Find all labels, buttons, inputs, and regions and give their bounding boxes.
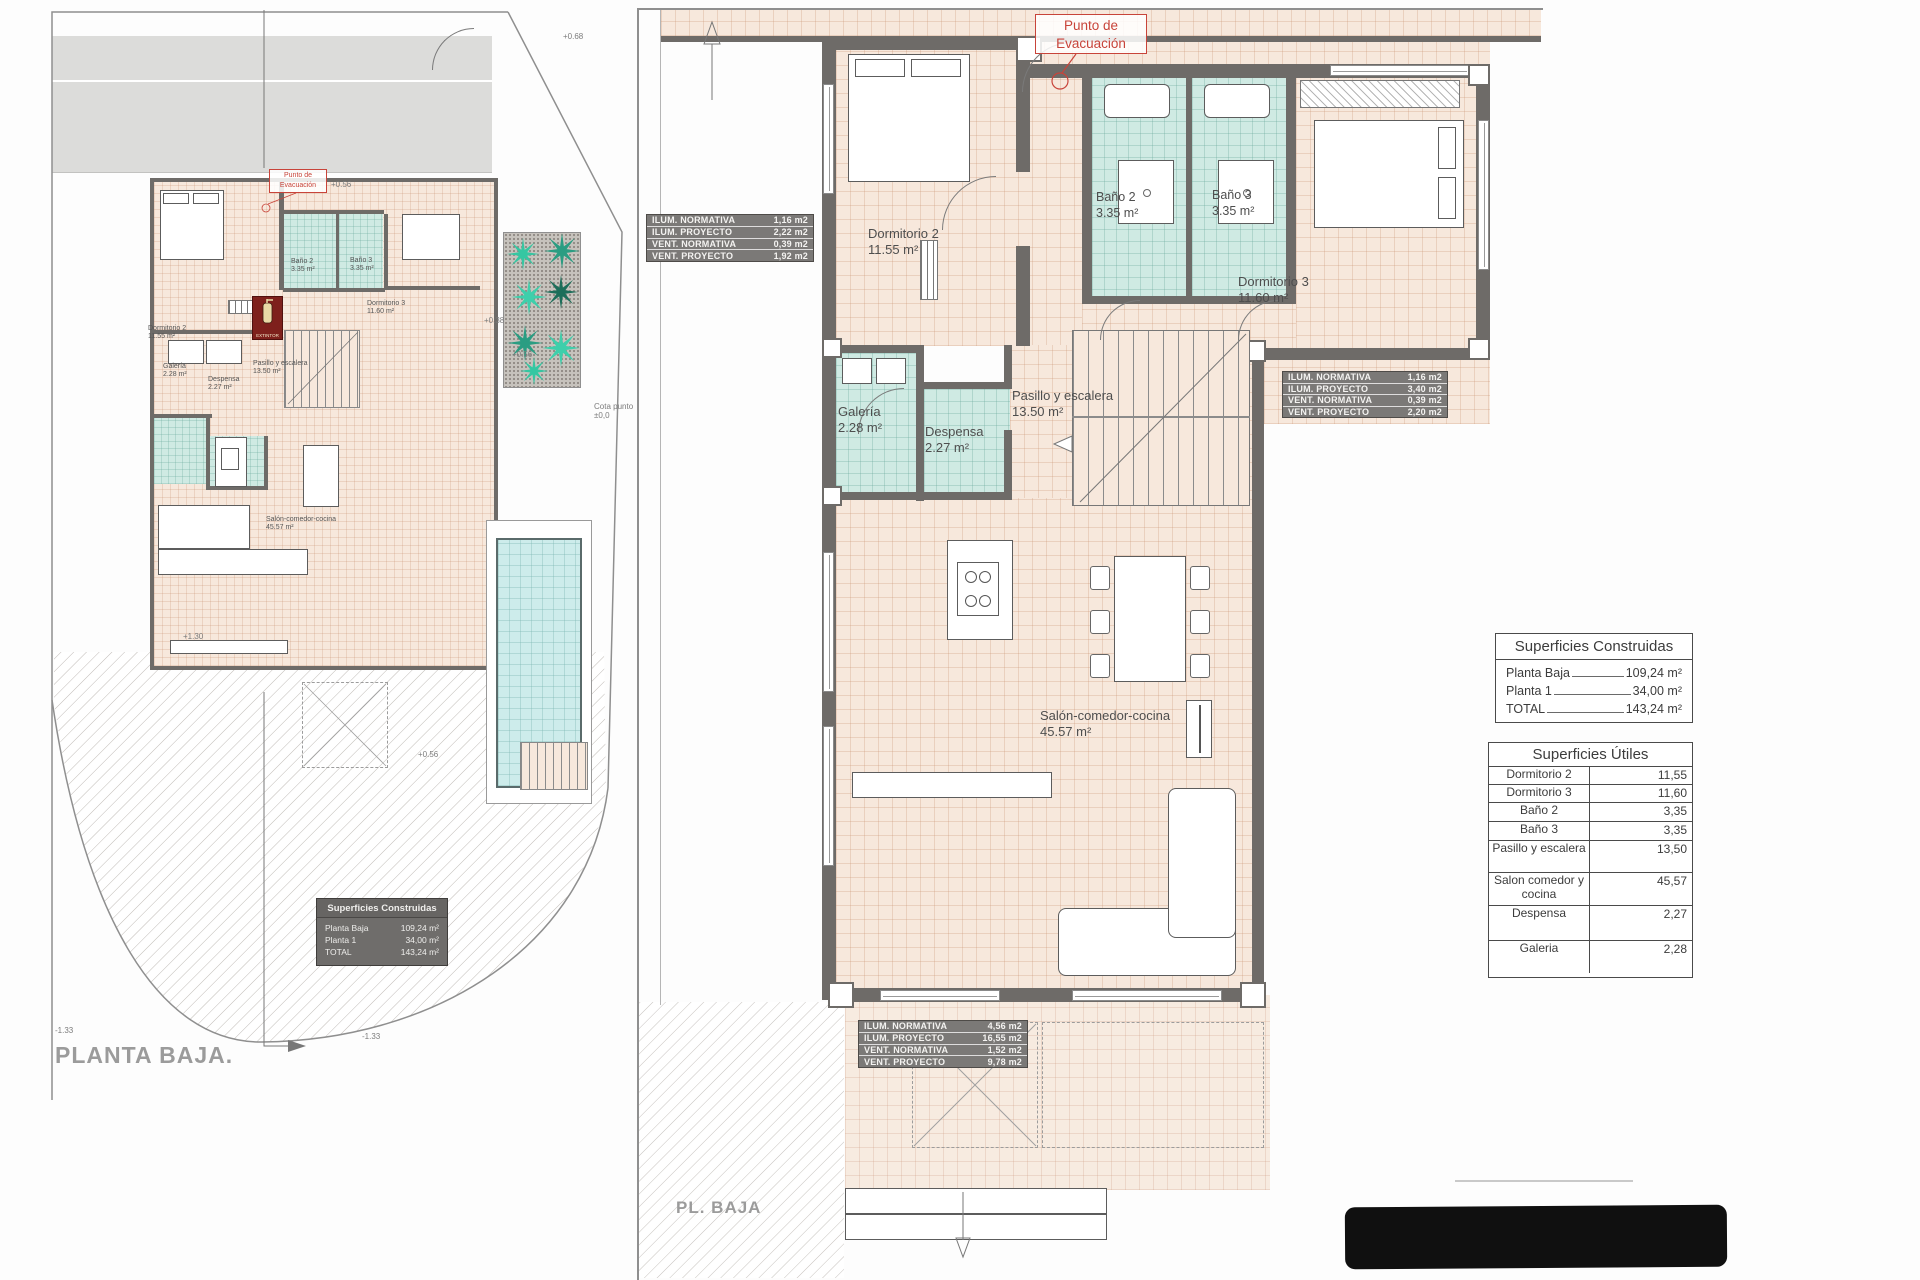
elevation-mark: +0.56 [418, 750, 438, 759]
sofa-icon [1168, 788, 1236, 938]
table-row: VENT. PROYECTO9,78 m2 [859, 1055, 1027, 1067]
stairs-direction-arrow-icon [1052, 434, 1074, 454]
pillow-icon [1438, 127, 1456, 169]
table-row: Salon comedor y cocina45,57 [1489, 872, 1692, 905]
window-icon [823, 726, 834, 866]
cota-note: Cota punto ±0,0 [594, 402, 633, 420]
floorplan-sheet: EXTINTOR Punto de Evacuación Dormitorio … [0, 0, 1920, 1280]
elevation-mark: +1.30 [183, 632, 203, 641]
room-label-bano2-small: Baño 23.35 m² [291, 258, 315, 275]
window-icon [1072, 990, 1222, 1001]
ink-smudge [1345, 1205, 1727, 1270]
extintor-label: EXTINTOR [253, 333, 282, 338]
box-row: TOTAL143,24 m² [317, 946, 447, 958]
window-icon [823, 552, 834, 692]
room-label-bano3: Baño 33.35 m² [1212, 188, 1254, 219]
room-label-galeria-small: Galería2.28 m² [163, 363, 187, 380]
pillar [828, 982, 854, 1008]
evacuation-label: Punto de Evacuación [1035, 14, 1147, 54]
plan-title-left: PLANTA BAJA. [55, 1042, 233, 1069]
ilum-table-2: ILUM. NORMATIVA1,16 m2 ILUM. PROYECTO3,4… [1282, 371, 1448, 418]
palm-tree-icon [542, 231, 582, 271]
chair-icon [1190, 610, 1210, 634]
table-row: Planta 134,00 m² [1496, 682, 1692, 700]
table-row: Planta Baja109,24 m² [1496, 664, 1692, 682]
wall-segment [384, 214, 388, 290]
wall-segment [836, 492, 1012, 500]
room-label-dormitorio3-small: Dormitorio 311.60 m² [367, 300, 405, 317]
garden-area [503, 232, 581, 388]
wall-segment [336, 214, 339, 290]
wardrobe-icon [1300, 80, 1460, 108]
table-row: ILUM. PROYECTO16,55 m2 [859, 1032, 1027, 1044]
dining-table-icon [1114, 556, 1186, 682]
wall-segment [384, 286, 480, 290]
table-row: ILUM. NORMATIVA4,56 m2 [859, 1021, 1027, 1032]
table-row: ILUM. PROYECTO3,40 m2 [1283, 383, 1447, 395]
superficies-construidas-box: Superficies Construidas Planta Baja109,2… [316, 898, 448, 966]
plan-title-right: PL. BAJA [676, 1198, 761, 1218]
wall-segment [1004, 345, 1012, 389]
pillar [822, 338, 842, 358]
window-icon [823, 84, 834, 194]
wall-segment [1186, 78, 1192, 302]
chair-icon [1090, 654, 1110, 678]
sofa-icon [158, 505, 250, 549]
chair-icon [1090, 566, 1110, 590]
table-row: VENT. NORMATIVA1,52 m2 [859, 1044, 1027, 1056]
table-row: Dormitorio 211,55 [1489, 766, 1692, 784]
evacuation-text: Punto de Evacuación [1056, 18, 1126, 51]
sink-icon [1104, 84, 1170, 118]
dining-table-icon [303, 445, 339, 507]
pillow-icon [911, 59, 961, 77]
entry-steps-icon [845, 1214, 1107, 1240]
sideboard-icon [852, 772, 1052, 798]
evacuation-label-small: Punto de Evacuación [269, 169, 327, 193]
table-row: Baño 23,35 [1489, 802, 1692, 821]
banos-floor-small [283, 214, 383, 290]
room-label-dormitorio2-small: Dormitorio 211.55 m² [148, 325, 186, 342]
box-title: Superficies Construidas [317, 899, 447, 918]
room-label-pasillo: Pasillo y escalera13.50 m² [1012, 388, 1113, 421]
table-row: Despensa2,27 [1489, 905, 1692, 940]
wall-segment [1252, 348, 1490, 360]
elevation-mark: -1.33 [55, 1026, 73, 1035]
tv-unit-icon [1186, 700, 1212, 758]
pillow-icon [1438, 177, 1456, 219]
palm-tree-icon [518, 355, 550, 387]
exterior-steps-icon [520, 742, 588, 790]
wall-segment [916, 353, 924, 501]
table-row: Galeria2,28 [1489, 940, 1692, 973]
table-row: VENT. PROYECTO1,92 m2 [647, 249, 813, 261]
neighbor-band [52, 36, 492, 173]
room-label-bano3-small: Baño 33.35 m² [350, 257, 374, 274]
pillow-icon [855, 59, 905, 77]
table-row: ILUM. PROYECTO2,22 m2 [647, 226, 813, 238]
plot-line [660, 10, 661, 1005]
table-title: Superficies Construidas [1496, 634, 1692, 660]
wall-segment [1082, 78, 1092, 302]
room-label-dormitorio2: Dormitorio 211.55 m² [868, 226, 939, 259]
wall-segment [283, 288, 385, 292]
table-row: Pasillo y escalera13,50 [1489, 840, 1692, 872]
sheet-border [637, 8, 639, 1280]
closet-icon [168, 340, 204, 364]
wall-segment [1252, 360, 1264, 1000]
chair-icon [1090, 610, 1110, 634]
sideboard-icon [170, 640, 288, 654]
room-label-galeria: Galería2.28 m² [838, 404, 882, 437]
wall-segment [206, 418, 210, 488]
bed-icon [402, 214, 460, 260]
chair-icon [1190, 566, 1210, 590]
box-row: Planta 134,00 m² [317, 934, 447, 946]
neighbor-band-line [52, 80, 492, 82]
fire-extinguisher-icon [253, 297, 282, 327]
room-label-pasillo-small: Pasillo y escalera13.50 m² [253, 360, 307, 377]
box-row: Planta Baja109,24 m² [317, 922, 447, 934]
entry-steps-icon [845, 1188, 1107, 1214]
cooktop-icon [221, 448, 239, 470]
table-row: TOTAL143,24 m² [1496, 700, 1692, 718]
fire-extinguisher-box: EXTINTOR [252, 296, 283, 340]
table-row: ILUM. NORMATIVA1,16 m2 [1283, 372, 1447, 383]
wall-segment [154, 414, 212, 418]
wall-segment [822, 36, 1030, 50]
elevation-mark: -1.33 [362, 1032, 380, 1041]
superficies-utiles-table: Superficies Útiles Dormitorio 211,55 Dor… [1488, 742, 1693, 978]
elevation-mark: +0.38 [484, 316, 504, 325]
sink-icon [1204, 84, 1270, 118]
cooktop-icon [957, 562, 999, 616]
drain-icon [1143, 189, 1151, 197]
pillar [1468, 64, 1490, 86]
superficies-construidas-table: Superficies Construidas Planta Baja109,2… [1495, 633, 1693, 723]
table-row: VENT. NORMATIVA0,39 m2 [647, 238, 813, 250]
elevation-mark: +0.68 [563, 32, 583, 41]
table-row: ILUM. NORMATIVA1,16 m2 [647, 215, 813, 226]
palm-tree-icon [505, 236, 541, 272]
sofa-icon [158, 549, 308, 575]
room-label-salon-small: Salón-comedor-cocina45.57 m² [266, 516, 336, 533]
room-label-despensa: Despensa2.27 m² [925, 424, 984, 457]
table-row: Baño 33,35 [1489, 821, 1692, 840]
closet-icon [206, 340, 242, 364]
pillar [1240, 982, 1266, 1008]
palm-tree-icon [542, 273, 580, 311]
room-label-dormitorio3: Dormitorio 311.60 m² [1238, 274, 1309, 307]
pergola-outline [302, 682, 388, 768]
elevation-mark: +0.56 [512, 350, 532, 359]
ilum-table-3: ILUM. NORMATIVA4,56 m2 ILUM. PROYECTO16,… [858, 1020, 1028, 1068]
table-row: VENT. PROYECTO2,20 m2 [1283, 406, 1447, 418]
wall-segment [1004, 430, 1012, 500]
window-icon [1330, 65, 1470, 76]
pergola-outline [1042, 1022, 1264, 1148]
evacuation-text: Punto de Evacuación [280, 172, 316, 189]
washer-icon [876, 358, 906, 384]
pillow-icon [163, 193, 189, 204]
wall-segment [264, 436, 268, 490]
pillar [822, 486, 842, 506]
wall-segment [1016, 246, 1030, 346]
pillow-icon [193, 193, 219, 204]
room-label-despensa-small: Despensa2.27 m² [208, 376, 240, 393]
table-row: VENT. NORMATIVA0,39 m2 [1283, 394, 1447, 406]
table-title: Superficies Útiles [1489, 743, 1692, 766]
room-label-bano2: Baño 23.35 m² [1096, 190, 1138, 221]
chair-icon [1190, 654, 1210, 678]
wall-segment [924, 382, 1012, 389]
room-label-salon: Salón-comedor-cocina45.57 m² [1040, 708, 1170, 741]
window-icon [1478, 120, 1489, 270]
table-row: Dormitorio 311,60 [1489, 784, 1692, 802]
elevation-mark: +0.56 [331, 180, 351, 189]
ilum-table-1: ILUM. NORMATIVA1,16 m2 ILUM. PROYECTO2,2… [646, 214, 814, 262]
window-icon [880, 990, 1000, 1001]
wall-segment [279, 182, 284, 290]
wall-segment [1286, 78, 1296, 302]
washer-icon [842, 358, 872, 384]
pillar [1468, 338, 1490, 360]
galeria-floor-small [154, 418, 208, 484]
wall-segment [280, 210, 384, 214]
